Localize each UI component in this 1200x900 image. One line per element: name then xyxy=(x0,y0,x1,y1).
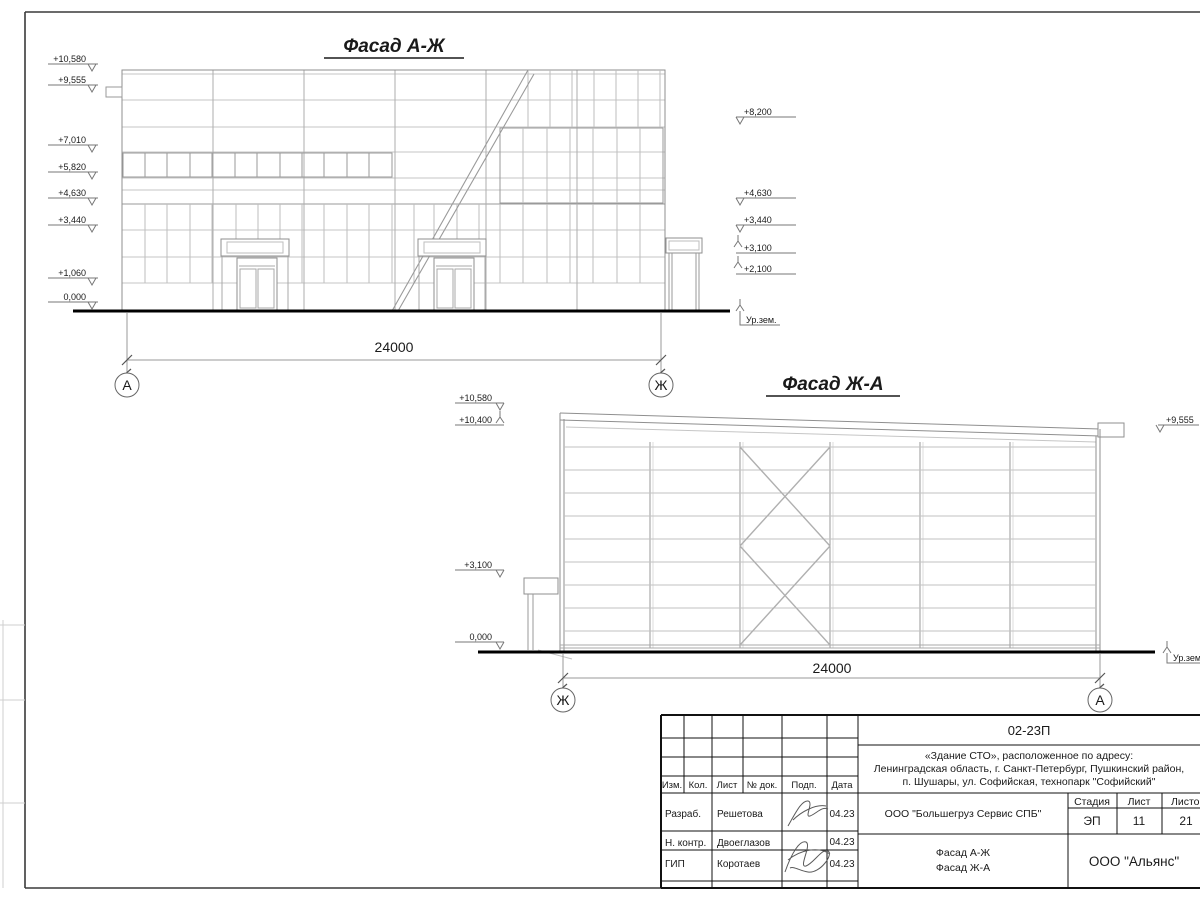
elevation-mark: +9,555 xyxy=(58,75,86,85)
f1-marks-right: +8,200 +4,630 +3,440 +3,100 +2,100 Ур.зе… xyxy=(734,107,796,325)
tb-col-doc: № док. xyxy=(747,780,777,791)
tb-col-kol: Кол. xyxy=(689,780,708,791)
f2-ground-label: Ур.зем. xyxy=(1173,653,1200,663)
tb-row0-date: 04.23 xyxy=(829,809,854,820)
f1-dim-ticks xyxy=(122,355,666,376)
elevation-mark-symbol xyxy=(736,198,796,205)
elevation-mark: +10,580 xyxy=(53,54,86,64)
elevation-mark: +3,100 xyxy=(464,560,492,570)
f1-annex-canopy xyxy=(666,238,702,253)
f2-dimension: 24000 Ж А xyxy=(551,654,1112,712)
f1-annex-columns xyxy=(669,253,699,311)
elevation-mark-symbol xyxy=(48,225,98,232)
tb-row0-role: Разраб. xyxy=(665,808,701,820)
f1-window-strip-mullions xyxy=(145,153,369,177)
tb-project-line1: «Здание СТО», расположенное по адресу: xyxy=(925,750,1133,762)
elevation-mark-symbol xyxy=(48,302,98,309)
f1-axis-left-label: А xyxy=(122,377,132,393)
drawing-canvas: Фасад А-Ж xyxy=(0,0,1200,900)
f1-right-annex xyxy=(666,238,702,311)
tb-drawing-title-1: Фасад А-Ж xyxy=(936,847,990,859)
left-margin-strip-lines xyxy=(0,620,25,888)
tb-sheet-label: Лист xyxy=(1128,796,1151,808)
tb-stage-label: Стадия xyxy=(1074,796,1110,808)
elevation-mark-symbol xyxy=(1156,425,1199,432)
f1-left-canopy-nub xyxy=(106,87,122,97)
elevation-mark-symbol xyxy=(736,117,796,124)
tb-client: ООО "Большегруз Сервис СПБ" xyxy=(885,808,1042,820)
elevation-mark: 0,000 xyxy=(63,292,86,302)
elevation-mark-symbol xyxy=(455,642,504,649)
tb-project-line2: Ленинградская область, г. Санкт-Петербур… xyxy=(874,763,1184,775)
tb-col-izm: Изм. xyxy=(662,780,682,791)
elevation-mark: +10,400 xyxy=(459,415,492,425)
facade1-title: Фасад А-Ж xyxy=(343,36,446,57)
tb-row1-date: 04.23 xyxy=(829,837,854,848)
f1-entrance-2 xyxy=(418,239,486,311)
tb-row2-name: Коротаев xyxy=(717,859,760,870)
tb-row1-role: Н. контр. xyxy=(665,838,706,849)
elevation-mark-symbol xyxy=(736,225,796,232)
facade-zh-a: Фасад Ж-А 24000 Ж А xyxy=(455,374,1200,712)
f2-marks-right: +9,555 Ур.зем. xyxy=(1156,415,1200,663)
tb-project-line3: п. Шушары, ул. Софийская, технопарк "Соф… xyxy=(903,776,1156,788)
f2-bay-columns-shadow xyxy=(653,442,1013,648)
f2-x-bracing xyxy=(740,447,830,645)
elevation-mark-symbol xyxy=(455,403,504,410)
f2-roof-slopes xyxy=(560,413,1100,436)
f1-axis-right-label: Ж xyxy=(655,377,668,393)
tb-row1-name: Двоеглазов xyxy=(717,838,770,849)
elevation-mark: +8,200 xyxy=(744,107,772,117)
elevation-mark: +3,440 xyxy=(58,215,86,225)
f1-marks-left: +10,580 +9,555 +7,010 +5,820 +4,630 +3,4… xyxy=(48,54,98,309)
elevation-mark: +9,555 xyxy=(1166,415,1194,425)
f2-parapet-cap xyxy=(1098,423,1124,437)
tb-doc-number: 02-23П xyxy=(1008,723,1051,738)
signature-1 xyxy=(788,801,828,826)
tb-col-data: Дата xyxy=(831,780,853,791)
tb-stage-value: ЭП xyxy=(1083,814,1100,828)
tb-row2-date: 04.23 xyxy=(829,859,854,870)
elevation-mark-symbol xyxy=(48,85,98,92)
f2-dim-text: 24000 xyxy=(813,660,852,676)
tb-row0-name: Решетова xyxy=(717,809,763,820)
elevation-mark-symbol xyxy=(48,145,98,152)
elevation-mark-symbol xyxy=(48,172,98,179)
signature-2 xyxy=(785,842,830,872)
f2-left-canopy xyxy=(524,578,558,594)
elevation-mark: +4,630 xyxy=(58,188,86,198)
tb-sheet-value: 11 xyxy=(1133,814,1146,828)
f1-dimension: 24000 А Ж xyxy=(115,313,673,397)
drawing-sheet: Фасад А-Ж xyxy=(0,0,1200,900)
title-block: 02-23П «Здание СТО», расположенное по ад… xyxy=(661,715,1200,888)
elevation-mark-symbol xyxy=(48,64,98,71)
tb-col-podp: Подп. xyxy=(791,780,816,791)
tb-row2-role: ГИП xyxy=(665,859,685,870)
tb-drawing-title-2: Фасад Ж-А xyxy=(936,862,990,874)
f1-right-panel-mullions xyxy=(523,128,640,203)
f1-dim-text: 24000 xyxy=(375,339,414,355)
f2-canopy-posts xyxy=(528,594,533,650)
f1-top-right-mullions xyxy=(528,70,660,127)
elevation-mark: +3,100 xyxy=(744,243,772,253)
f2-marks-left: +10,580 +10,400 +3,100 0,000 xyxy=(455,393,504,649)
tb-company: ООО "Альянс" xyxy=(1089,854,1179,869)
tb-col-list: Лист xyxy=(717,780,738,791)
f2-axis-left-label: Ж xyxy=(557,692,570,708)
elevation-mark: +4,630 xyxy=(744,188,772,198)
elevation-mark-symbol xyxy=(48,198,98,205)
facade1-linework xyxy=(106,70,665,311)
tb-sheets-label: Листов xyxy=(1171,796,1200,808)
elevation-mark: 0,000 xyxy=(469,632,492,642)
f1-lower-mullions-full xyxy=(145,204,640,283)
f2-roof-beam xyxy=(566,427,1096,442)
f1-entrance-1 xyxy=(221,239,289,311)
facade2-title: Фасад Ж-А xyxy=(782,374,883,395)
f1-horizontal-bands xyxy=(122,74,665,283)
tb-sheets-value: 21 xyxy=(1179,814,1193,828)
f2-axis-right-label: А xyxy=(1095,692,1105,708)
elevation-mark: +7,010 xyxy=(58,135,86,145)
elevation-mark: +2,100 xyxy=(744,264,772,274)
f1-right-panel xyxy=(500,128,663,203)
f1-ground-label: Ур.зем. xyxy=(746,315,777,325)
elevation-mark: +1,060 xyxy=(58,268,86,278)
elevation-mark-symbol xyxy=(48,278,98,285)
elevation-mark: +3,440 xyxy=(744,215,772,225)
elevation-mark-symbol xyxy=(455,570,504,577)
facade-a-zh: Фасад А-Ж xyxy=(48,36,796,397)
facade2-linework xyxy=(524,413,1124,659)
elevation-mark: +5,820 xyxy=(58,162,86,172)
elevation-mark: +10,580 xyxy=(459,393,492,403)
